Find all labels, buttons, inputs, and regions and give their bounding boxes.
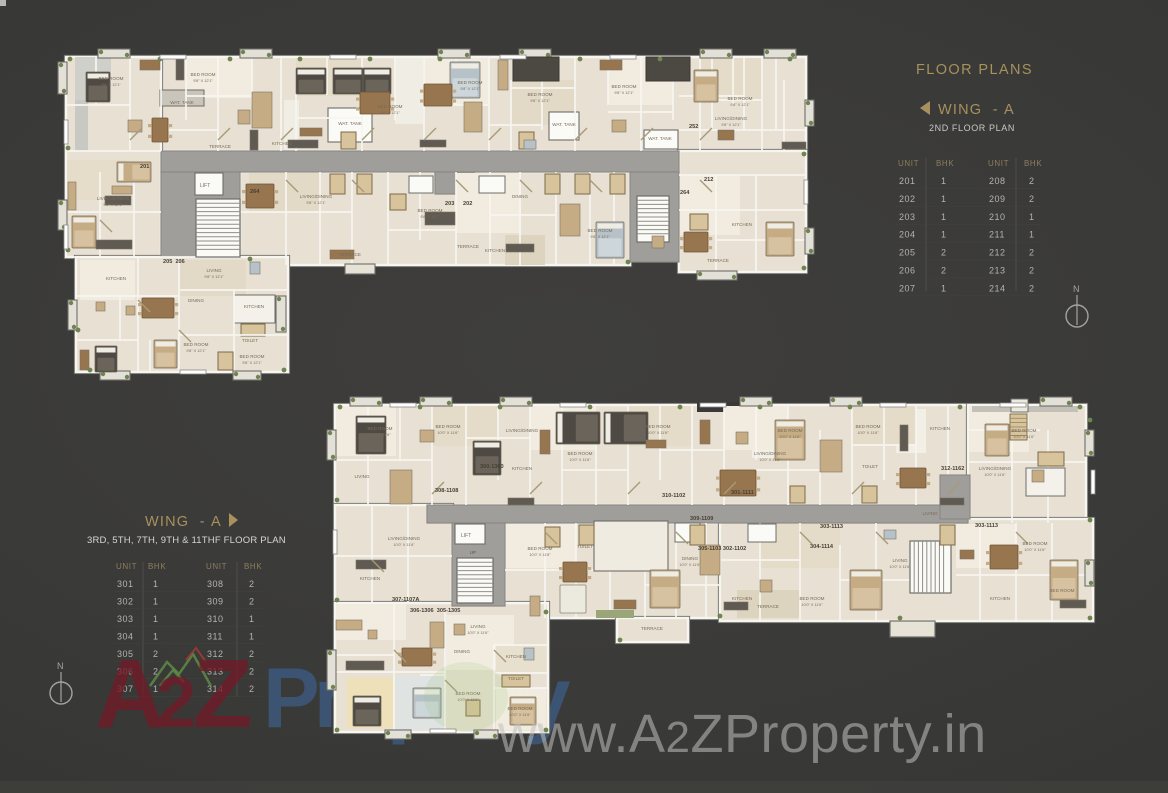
svg-text:UNIT: UNIT	[988, 159, 1009, 168]
svg-text:306-1306 305-1305: 306-1306 305-1305	[410, 608, 460, 614]
svg-text:DINING: DINING	[512, 194, 529, 199]
svg-text:LIVING/DINING: LIVING/DINING	[506, 428, 539, 433]
svg-text:KITCHEN: KITCHEN	[506, 654, 526, 659]
svg-text:9'8" X 12'1": 9'8" X 12'1"	[186, 349, 206, 353]
svg-text:9'8" X 12'1": 9'8" X 12'1"	[306, 201, 326, 205]
svg-text:TERRACE: TERRACE	[339, 252, 361, 257]
svg-text:WAT. TANK: WAT. TANK	[552, 122, 576, 127]
svg-text:10'0" X 11'6": 10'0" X 11'6"	[889, 565, 911, 569]
svg-text:9'8" X 12'1": 9'8" X 12'1"	[614, 91, 634, 95]
svg-text:252: 252	[689, 124, 698, 130]
svg-text:DINING: DINING	[188, 298, 205, 303]
svg-text:WING - A: WING - A	[938, 102, 1015, 118]
svg-text:201: 201	[899, 176, 916, 186]
svg-text:KITCHEN: KITCHEN	[360, 576, 380, 581]
svg-text:2ND FLOOR PLAN: 2ND FLOOR PLAN	[929, 123, 1015, 133]
svg-text:303-1113: 303-1113	[820, 524, 843, 530]
svg-text:LIVING/DINING: LIVING/DINING	[388, 536, 421, 541]
svg-text:BED ROOM: BED ROOM	[611, 84, 636, 89]
svg-text:N: N	[1073, 284, 1080, 294]
svg-text:10'0" X 11'6": 10'0" X 11'6"	[1013, 435, 1035, 439]
svg-text:DINING: DINING	[682, 556, 699, 561]
svg-text:9'8" X 12'1": 9'8" X 12'1"	[460, 87, 480, 91]
svg-text:TERRACE: TERRACE	[457, 244, 479, 249]
svg-text:9'8" X 12'1": 9'8" X 12'1"	[730, 103, 750, 107]
svg-text:TERRACE: TERRACE	[641, 626, 663, 631]
svg-text:1: 1	[941, 176, 946, 186]
svg-text:2: 2	[941, 248, 946, 258]
svg-text:10'0" X 11'6": 10'0" X 11'6"	[984, 473, 1006, 477]
svg-text:10'0" X 11'6": 10'0" X 11'6"	[779, 435, 801, 439]
svg-text:BHK: BHK	[1024, 159, 1042, 168]
svg-text:208: 208	[989, 176, 1006, 186]
svg-text:9'8" X 12'1": 9'8" X 12'1"	[530, 99, 550, 103]
svg-text:10'0" X 11'6": 10'0" X 11'6"	[647, 431, 669, 435]
svg-text:BED ROOM: BED ROOM	[98, 76, 123, 81]
svg-text:209: 209	[989, 194, 1006, 204]
svg-text:TERRACE: TERRACE	[757, 604, 779, 609]
svg-text:2: 2	[941, 266, 946, 276]
svg-text:308-1108: 308-1108	[435, 488, 458, 494]
svg-text:TERRACE: TERRACE	[209, 144, 231, 149]
svg-text:264: 264	[680, 190, 690, 196]
svg-text:BED ROOM: BED ROOM	[377, 104, 402, 109]
svg-text:LIVING: LIVING	[922, 511, 937, 516]
svg-text:KITCHEN: KITCHEN	[512, 466, 532, 471]
svg-text:206: 206	[899, 266, 916, 276]
svg-text:1: 1	[249, 614, 254, 624]
svg-text:307-1107A: 307-1107A	[392, 597, 419, 603]
svg-text:309-1109: 309-1109	[690, 516, 713, 522]
svg-text:BED ROOM: BED ROOM	[727, 96, 752, 101]
svg-text:9'8" X 12'1": 9'8" X 12'1"	[101, 83, 121, 87]
svg-text:10'0" X 11'6": 10'0" X 11'6"	[1024, 548, 1046, 552]
svg-text:BED ROOM: BED ROOM	[435, 424, 460, 429]
svg-text:2: 2	[156, 663, 196, 743]
svg-text:1: 1	[153, 597, 158, 607]
svg-text:BED ROOM: BED ROOM	[417, 208, 442, 213]
svg-text:KITCHEN: KITCHEN	[244, 304, 264, 309]
svg-text:TOILET: TOILET	[577, 544, 593, 549]
svg-text:BED ROOM: BED ROOM	[527, 92, 552, 97]
svg-text:UNIT: UNIT	[116, 562, 137, 571]
svg-text:Z: Z	[193, 639, 252, 748]
svg-text:1: 1	[941, 194, 946, 204]
svg-text:10'0" X 11'6": 10'0" X 11'6"	[369, 433, 391, 437]
svg-text:TOILET: TOILET	[242, 338, 258, 343]
svg-text:LIVING/DINING: LIVING/DINING	[715, 116, 748, 121]
svg-text:KITCHEN: KITCHEN	[990, 596, 1010, 601]
svg-text:WAT. TANK: WAT. TANK	[648, 136, 672, 141]
svg-text:310-1102: 310-1102	[662, 493, 685, 499]
svg-text:10'0" X 11'6": 10'0" X 11'6"	[759, 458, 781, 462]
svg-text:1: 1	[1029, 212, 1034, 222]
svg-text:303: 303	[117, 614, 134, 624]
svg-text:264: 264	[250, 189, 260, 195]
svg-text:WING - A: WING - A	[145, 514, 222, 530]
svg-text:203: 203	[445, 201, 454, 207]
svg-text:LIVING: LIVING	[206, 268, 221, 273]
svg-text:213: 213	[989, 266, 1006, 276]
svg-text:WAT. TANK: WAT. TANK	[338, 121, 362, 126]
svg-text:1: 1	[941, 212, 946, 222]
svg-text:2: 2	[249, 597, 254, 607]
svg-text:BED ROOM: BED ROOM	[799, 596, 824, 601]
svg-text:10'0" X 11'6": 10'0" X 11'6"	[529, 553, 551, 557]
svg-text:10'0" X 11'6": 10'0" X 11'6"	[437, 431, 459, 435]
svg-text:303-1113: 303-1113	[975, 523, 998, 529]
svg-text:LIVING/DINING: LIVING/DINING	[97, 196, 130, 201]
svg-text:2: 2	[1029, 194, 1034, 204]
svg-text:BED ROOM: BED ROOM	[567, 451, 592, 456]
svg-text:210: 210	[989, 212, 1006, 222]
svg-text:1: 1	[941, 230, 946, 240]
svg-text:KITCHEN: KITCHEN	[272, 141, 292, 146]
svg-text:2: 2	[1029, 176, 1034, 186]
svg-text:310: 310	[207, 614, 224, 624]
svg-text:BED ROOM: BED ROOM	[777, 428, 802, 433]
svg-text:FLOOR PLANS: FLOOR PLANS	[916, 62, 1033, 78]
svg-text:214: 214	[989, 283, 1006, 293]
svg-text:205 206: 205 206	[163, 259, 185, 265]
svg-text:2: 2	[1029, 248, 1034, 258]
svg-text:KITCHEN: KITCHEN	[106, 276, 126, 281]
svg-text:LIVING/DINING: LIVING/DINING	[979, 466, 1012, 471]
svg-text:204: 204	[899, 230, 916, 240]
svg-text:312-1162: 312-1162	[941, 466, 964, 472]
svg-text:9'8" X 12'1": 9'8" X 12'1"	[420, 215, 440, 219]
svg-text:10'0" X 11'6": 10'0" X 11'6"	[393, 543, 415, 547]
svg-text:212: 212	[704, 177, 713, 183]
svg-text:TERRACE: TERRACE	[707, 258, 729, 263]
svg-text:BED ROOM: BED ROOM	[190, 72, 215, 77]
svg-text:207: 207	[899, 283, 916, 293]
svg-text:2: 2	[1029, 266, 1034, 276]
svg-text:KITCHEN: KITCHEN	[732, 596, 752, 601]
svg-text:LIVING: LIVING	[892, 558, 907, 563]
svg-text:309: 309	[207, 597, 224, 607]
svg-text:BED ROOM: BED ROOM	[527, 546, 552, 551]
svg-text:1: 1	[153, 579, 158, 589]
svg-text:9'8" X 12'1": 9'8" X 12'1"	[242, 361, 262, 365]
svg-text:9'8" X 12'1": 9'8" X 12'1"	[193, 79, 213, 83]
svg-text:9'8" X 12'1": 9'8" X 12'1"	[204, 275, 224, 279]
svg-text:BED ROOM: BED ROOM	[587, 228, 612, 233]
svg-text:BHK: BHK	[936, 159, 954, 168]
svg-text:BED ROOM: BED ROOM	[645, 424, 670, 429]
svg-text:9'8" X 12'1": 9'8" X 12'1"	[380, 111, 400, 115]
svg-text:WAT. TANK: WAT. TANK	[170, 100, 194, 105]
svg-text:LIVING: LIVING	[470, 624, 485, 629]
svg-text:302: 302	[117, 597, 134, 607]
svg-text:202: 202	[899, 194, 916, 204]
svg-text:UP: UP	[470, 550, 476, 555]
svg-text:LIVING/DINING: LIVING/DINING	[754, 451, 787, 456]
svg-text:10'0" X 11'6": 10'0" X 11'6"	[857, 431, 879, 435]
svg-text:KITCHEN: KITCHEN	[485, 248, 505, 253]
svg-text:TOILET: TOILET	[862, 464, 878, 469]
svg-text:9'8" X 12'1": 9'8" X 12'1"	[721, 123, 741, 127]
svg-text:1: 1	[153, 614, 158, 624]
svg-text:LIFT: LIFT	[461, 533, 471, 539]
svg-text:10'0" X 11'6": 10'0" X 11'6"	[679, 563, 701, 567]
svg-text:301: 301	[117, 579, 134, 589]
svg-text:www.A2ZProperty.in: www.A2ZProperty.in	[497, 704, 987, 764]
svg-text:2: 2	[249, 579, 254, 589]
svg-text:TOILET: TOILET	[508, 676, 524, 681]
svg-text:1: 1	[941, 283, 946, 293]
svg-text:BED ROOM: BED ROOM	[1011, 428, 1036, 433]
svg-text:9'8" X 12'1": 9'8" X 12'1"	[103, 203, 123, 207]
svg-text:2: 2	[1029, 283, 1034, 293]
svg-text:3RD, 5TH, 7TH, 9TH & 11THF FLO: 3RD, 5TH, 7TH, 9TH & 11THF FLOOR PLAN	[87, 535, 286, 546]
svg-text:LIVING/DINING: LIVING/DINING	[300, 194, 333, 199]
svg-text:BHK: BHK	[148, 562, 166, 571]
svg-text:1: 1	[1029, 230, 1034, 240]
svg-text:305-1103 302-1102: 305-1103 302-1102	[698, 546, 746, 552]
svg-text:BED ROOM: BED ROOM	[855, 424, 880, 429]
svg-text:KITCHEN: KITCHEN	[930, 426, 950, 431]
svg-text:BED ROOM: BED ROOM	[1022, 541, 1047, 546]
svg-text:212: 212	[989, 248, 1006, 258]
svg-text:LIFT: LIFT	[200, 183, 210, 189]
svg-text:BHK: BHK	[244, 562, 262, 571]
svg-text:10'0" X 11'6": 10'0" X 11'6"	[569, 458, 591, 462]
svg-text:BED ROOM: BED ROOM	[183, 342, 208, 347]
svg-text:N: N	[57, 661, 64, 671]
svg-text:UNIT: UNIT	[206, 562, 227, 571]
svg-text:A: A	[95, 639, 165, 748]
svg-text:301-1111: 301-1111	[731, 490, 754, 496]
svg-text:UNIT: UNIT	[898, 159, 919, 168]
svg-text:202: 202	[463, 201, 472, 207]
svg-text:9'8" X 12'1": 9'8" X 12'1"	[590, 235, 610, 239]
svg-text:BED ROOM: BED ROOM	[457, 80, 482, 85]
svg-text:203: 203	[899, 212, 916, 222]
svg-text:10'0" X 11'6": 10'0" X 11'6"	[467, 631, 489, 635]
svg-text:205: 205	[899, 248, 916, 258]
svg-text:BED ROOM: BED ROOM	[367, 426, 392, 431]
svg-text:10'0" X 11'6": 10'0" X 11'6"	[801, 603, 823, 607]
svg-text:DINING: DINING	[454, 649, 471, 654]
svg-text:304-1114: 304-1114	[810, 544, 834, 550]
svg-text:201: 201	[140, 164, 149, 170]
svg-text:KITCHEN: KITCHEN	[732, 222, 752, 227]
svg-text:300-1300: 300-1300	[480, 464, 504, 470]
svg-text:308: 308	[207, 579, 224, 589]
svg-text:BED ROOM: BED ROOM	[1049, 588, 1074, 593]
svg-text:LIVING: LIVING	[354, 474, 369, 479]
svg-text:211: 211	[989, 230, 1005, 240]
svg-text:BED ROOM: BED ROOM	[239, 354, 264, 359]
